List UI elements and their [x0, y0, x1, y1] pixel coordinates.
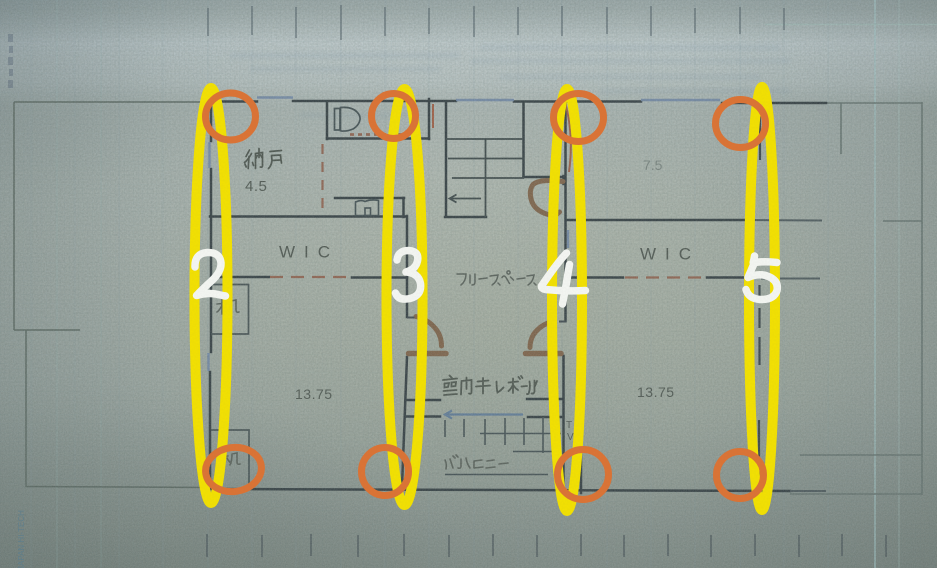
- svg-text:JAPAN HI-TECH: JAPAN HI-TECH: [17, 510, 26, 568]
